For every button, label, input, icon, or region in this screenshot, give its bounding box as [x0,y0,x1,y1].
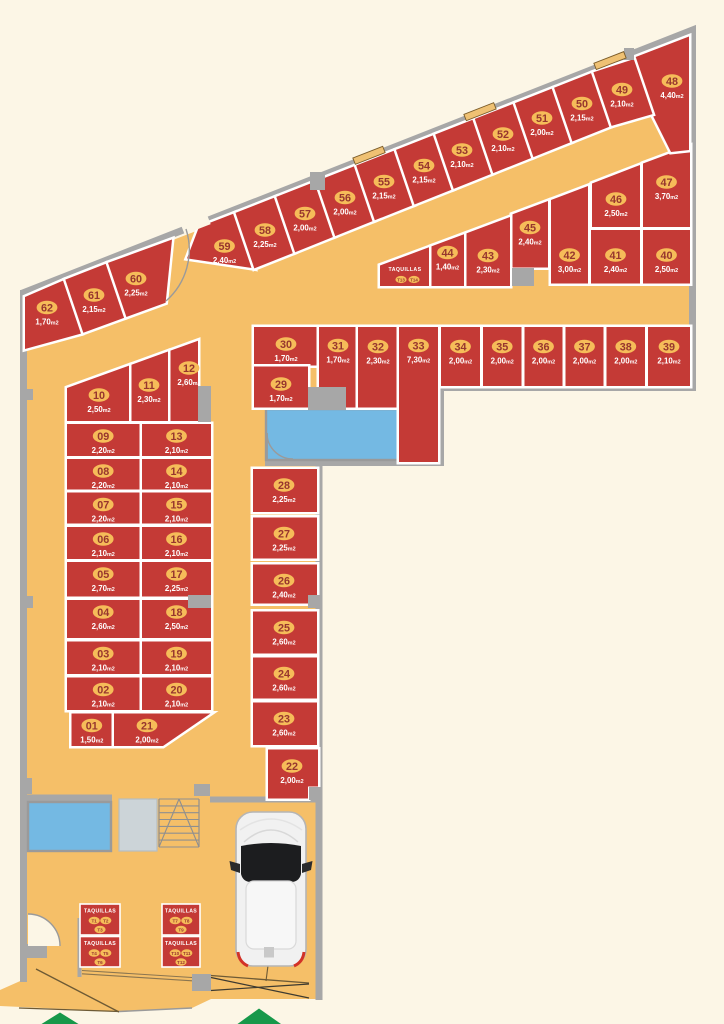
svg-text:32: 32 [372,341,384,353]
svg-text:14: 14 [170,466,182,478]
svg-text:28: 28 [278,480,290,492]
svg-text:61: 61 [88,290,100,302]
svg-text:41: 41 [609,250,621,262]
svg-text:18: 18 [170,607,182,619]
svg-text:26: 26 [278,575,290,587]
svg-text:54: 54 [418,160,430,172]
svg-text:T13: T13 [397,277,405,282]
svg-text:60: 60 [130,273,142,285]
svg-text:49: 49 [616,84,628,96]
svg-text:50: 50 [576,98,588,110]
svg-text:62: 62 [41,302,53,314]
svg-text:T6: T6 [97,960,103,965]
svg-text:20: 20 [170,684,182,696]
svg-text:T11: T11 [183,951,191,956]
svg-text:37: 37 [578,341,590,353]
svg-text:23: 23 [278,713,290,725]
svg-text:22: 22 [286,761,298,773]
svg-text:59: 59 [218,241,230,253]
svg-text:TAQUILLAS: TAQUILLAS [165,941,197,947]
svg-text:48: 48 [666,76,678,88]
svg-text:44: 44 [441,247,453,259]
svg-text:27: 27 [278,528,290,540]
svg-text:TAQUILLAS: TAQUILLAS [84,909,116,915]
svg-text:08: 08 [97,466,109,478]
svg-text:T3: T3 [97,928,103,933]
svg-text:45: 45 [524,222,536,234]
svg-text:T1: T1 [92,919,98,924]
svg-text:T12: T12 [177,960,185,965]
svg-text:11: 11 [143,380,154,392]
svg-text:34: 34 [454,341,466,353]
svg-text:36: 36 [537,341,549,353]
svg-text:25: 25 [278,622,290,634]
svg-text:01: 01 [86,720,98,732]
svg-text:TAQUILLAS: TAQUILLAS [165,909,197,915]
svg-text:31: 31 [332,340,344,352]
svg-text:15: 15 [170,499,182,511]
svg-text:17: 17 [170,569,182,581]
svg-text:TAQUILLAS: TAQUILLAS [389,267,422,273]
svg-text:55: 55 [378,176,390,188]
svg-text:39: 39 [663,341,675,353]
svg-text:19: 19 [170,648,182,660]
svg-text:46: 46 [610,194,622,206]
svg-text:38: 38 [620,341,632,353]
svg-text:T7: T7 [173,919,179,924]
svg-text:T10: T10 [171,951,179,956]
svg-text:05: 05 [97,569,109,581]
svg-text:53: 53 [456,145,468,157]
svg-text:T4: T4 [92,951,98,956]
svg-text:42: 42 [563,250,575,262]
svg-text:47: 47 [660,177,672,189]
svg-text:29: 29 [275,379,287,391]
svg-text:T5: T5 [103,951,109,956]
svg-text:21: 21 [141,720,153,732]
svg-text:56: 56 [339,192,351,204]
svg-text:10: 10 [93,390,105,402]
svg-text:07: 07 [97,499,109,511]
svg-text:40: 40 [660,250,672,262]
svg-text:33: 33 [412,340,424,352]
svg-text:35: 35 [496,341,508,353]
svg-text:58: 58 [259,225,271,237]
svg-text:T9: T9 [178,928,184,933]
svg-text:13: 13 [170,431,182,443]
svg-text:04: 04 [97,607,109,619]
svg-text:30: 30 [280,339,292,351]
svg-text:16: 16 [170,534,182,546]
svg-text:52: 52 [497,129,509,141]
svg-text:T14: T14 [410,277,418,282]
svg-text:T2: T2 [103,919,109,924]
svg-text:02: 02 [97,684,109,696]
svg-text:T8: T8 [184,919,190,924]
svg-text:12: 12 [183,363,195,375]
svg-text:57: 57 [299,208,311,220]
svg-text:43: 43 [482,250,494,262]
svg-text:24: 24 [278,668,290,680]
svg-text:TAQUILLAS: TAQUILLAS [84,941,116,947]
svg-text:03: 03 [97,648,109,660]
svg-text:06: 06 [97,534,109,546]
svg-text:51: 51 [536,113,548,125]
svg-text:09: 09 [97,431,109,443]
